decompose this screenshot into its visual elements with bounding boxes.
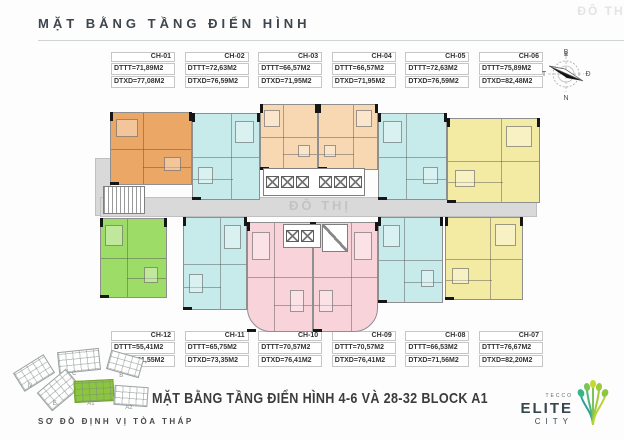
unit-dttt-label: DTTT=66,53M2 <box>405 342 469 354</box>
unit-label-ch-10: CH-10DTTT=70,57M2DTXD=76,41M2 <box>258 331 322 368</box>
bed-furniture <box>235 121 253 143</box>
unit-dttt-label: DTTT=75,89M2 <box>479 63 543 75</box>
unit-label-ch-09: CH-09DTTT=70,57M2DTXD=76,41M2 <box>332 331 396 368</box>
logo-name-line2: CITY <box>520 418 573 426</box>
unit-label-ch-07: CH-07DTTT=76,67M2DTXD=82,20M2 <box>479 331 543 368</box>
plan-watermark: ĐÔ THỊ <box>245 198 395 213</box>
compass-east-label: Đ <box>585 71 590 78</box>
stairwell-left <box>103 186 145 214</box>
unit-label-ch-02: CH-02DTTT=72,63M2DTXD=76,59M2 <box>185 52 249 89</box>
stairwell-right <box>322 224 348 252</box>
elevator-shaft-icon <box>286 230 299 242</box>
elevator-shaft-icon <box>301 230 314 242</box>
table-furniture <box>144 267 158 283</box>
table-furniture <box>452 268 469 284</box>
bed-furniture <box>116 119 138 137</box>
elevator-shaft-icon <box>319 176 332 188</box>
elevator-shaft-icon <box>349 176 362 188</box>
plan-unit-ch-12 <box>100 218 167 298</box>
tower-location-caption: SƠ ĐỒ ĐỊNH VỊ TÒA THÁP <box>38 417 194 426</box>
elevator-shaft-icon <box>334 176 347 188</box>
unit-id-label: CH-05 <box>405 52 469 62</box>
unit-label-ch-11: CH-11DTTT=65,75M2DTXD=73,35M2 <box>185 331 249 368</box>
plan-unit-ch-11 <box>183 217 247 310</box>
unit-dttt-label: DTTT=72,63M2 <box>405 63 469 75</box>
unit-id-label: CH-03 <box>258 52 322 62</box>
table-furniture <box>189 274 203 292</box>
plan-unit-ch-05 <box>378 113 447 200</box>
elevator-shaft-icon <box>266 176 279 188</box>
page-title: MẶT BẰNG TẦNG ĐIỂN HÌNH <box>38 16 311 31</box>
logo-name-line1: ELITE <box>520 401 573 416</box>
site-building-b <box>106 350 144 379</box>
site-building-label: A2 <box>125 405 132 411</box>
unit-dtxd-label: DTXD=71,56M2 <box>405 355 469 367</box>
site-building-label: E <box>53 401 57 407</box>
floor-plan: ĐÔ THỊ <box>95 98 545 334</box>
bed-furniture <box>383 225 401 247</box>
bed-furniture <box>383 121 402 143</box>
unit-dtxd-label: DTXD=71,95M2 <box>332 76 396 88</box>
plan-unit-ch-06 <box>447 118 540 203</box>
unit-dttt-label: DTTT=70,57M2 <box>258 342 322 354</box>
unit-id-label: CH-04 <box>332 52 396 62</box>
table-furniture <box>198 167 213 184</box>
unit-dttt-label: DTTT=66,57M2 <box>332 63 396 75</box>
site-building-label: D <box>28 383 32 389</box>
plan-unit-ch-04 <box>318 104 378 170</box>
elevator-shaft-icon <box>296 176 309 188</box>
unit-dttt-label: DTTT=72,63M2 <box>185 63 249 75</box>
plan-unit-ch-03 <box>260 104 318 170</box>
corner-watermark: ĐÔ THỊ <box>577 4 624 18</box>
table-furniture <box>455 170 475 187</box>
table-furniture <box>290 290 304 312</box>
unit-dttt-label: DTTT=76,67M2 <box>479 342 543 354</box>
unit-labels-bottom-row: CH-12DTTT=55,41M2DTXD=61,55M2CH-11DTTT=6… <box>111 331 543 368</box>
site-building-a2 <box>113 385 148 407</box>
bed-furniture <box>264 110 280 127</box>
unit-dtxd-label: DTXD=82,20M2 <box>479 355 543 367</box>
logo-brand-label: TECCO <box>520 394 573 399</box>
unit-dtxd-label: DTXD=76,41M2 <box>258 355 322 367</box>
unit-label-ch-03: CH-03DTTT=66,57M2DTXD=71,95M2 <box>258 52 322 89</box>
bed-furniture <box>252 232 270 260</box>
unit-dtxd-label: DTXD=77,08M2 <box>111 76 175 88</box>
plan-unit-ch-07 <box>445 217 523 300</box>
unit-label-ch-01: CH-01DTTT=71,89M2DTXD=77,08M2 <box>111 52 175 89</box>
bed-furniture <box>495 224 516 245</box>
unit-dtxd-label: DTXD=76,59M2 <box>405 76 469 88</box>
compass-icon: B Đ T N <box>538 46 594 102</box>
bed-furniture <box>356 110 372 127</box>
plan-footer-title: MẶT BẰNG TẦNG ĐIỂN HÌNH 4-6 VÀ 28-32 BLO… <box>131 390 509 407</box>
elevator-shaft-icon <box>281 176 294 188</box>
unit-dtxd-label: DTXD=76,59M2 <box>185 76 249 88</box>
unit-dtxd-label: DTXD=76,41M2 <box>332 355 396 367</box>
table-furniture <box>164 157 182 171</box>
unit-label-ch-06: CH-06DTTT=75,89M2DTXD=82,48M2 <box>479 52 543 89</box>
unit-id-label: CH-01 <box>111 52 175 62</box>
unit-dttt-label: DTTT=66,57M2 <box>258 63 322 75</box>
plan-unit-ch-08 <box>378 217 443 303</box>
unit-dtxd-label: DTXD=82,48M2 <box>479 76 543 88</box>
unit-dttt-label: DTTT=65,75M2 <box>185 342 249 354</box>
logo-text: TECCO ELITE CITY <box>520 394 573 426</box>
unit-dttt-label: DTTT=70,57M2 <box>332 342 396 354</box>
tree-icon <box>576 378 610 426</box>
table-furniture <box>423 167 438 184</box>
unit-id-label: CH-02 <box>185 52 249 62</box>
table-furniture <box>324 145 337 158</box>
unit-label-ch-04: CH-04DTTT=66,57M2DTXD=71,95M2 <box>332 52 396 89</box>
bed-furniture <box>224 225 241 249</box>
elevator-core <box>263 168 365 196</box>
unit-id-label: CH-06 <box>479 52 543 62</box>
unit-dtxd-label: DTXD=71,95M2 <box>258 76 322 88</box>
bed-furniture <box>105 225 123 245</box>
unit-labels-top-row: CH-01DTTT=71,89M2DTXD=77,08M2CH-02DTTT=7… <box>111 52 543 89</box>
site-building-label: A1 <box>87 401 94 407</box>
unit-dtxd-label: DTXD=73,35M2 <box>185 355 249 367</box>
tower-location-map: DCBEA1A2 <box>14 348 154 410</box>
bed-furniture <box>506 126 531 148</box>
header-divider <box>38 40 624 41</box>
unit-label-ch-08: CH-08DTTT=66,53M2DTXD=71,56M2 <box>405 331 469 368</box>
compass-north-label: B <box>564 49 569 56</box>
table-furniture <box>298 145 310 158</box>
table-furniture <box>421 270 435 287</box>
unit-dttt-label: DTTT=71,89M2 <box>111 63 175 75</box>
plan-unit-ch-02 <box>192 113 260 200</box>
plan-unit-ch-01 <box>110 112 192 185</box>
unit-label-ch-05: CH-05DTTT=72,63M2DTXD=76,59M2 <box>405 52 469 89</box>
site-building-a1 <box>73 379 114 403</box>
tecco-elite-city-logo: TECCO ELITE CITY <box>520 378 610 426</box>
floorplan-page: MẶT BẰNG TẦNG ĐIỂN HÌNH ĐÔ THỊ CH-01DTTT… <box>0 0 624 440</box>
site-building-label: B <box>119 373 123 379</box>
table-furniture <box>319 290 333 312</box>
compass-west-label: T <box>542 71 547 78</box>
elevator-core-secondary <box>283 224 321 248</box>
bed-furniture <box>354 232 372 260</box>
compass-south-label: N <box>563 95 568 102</box>
